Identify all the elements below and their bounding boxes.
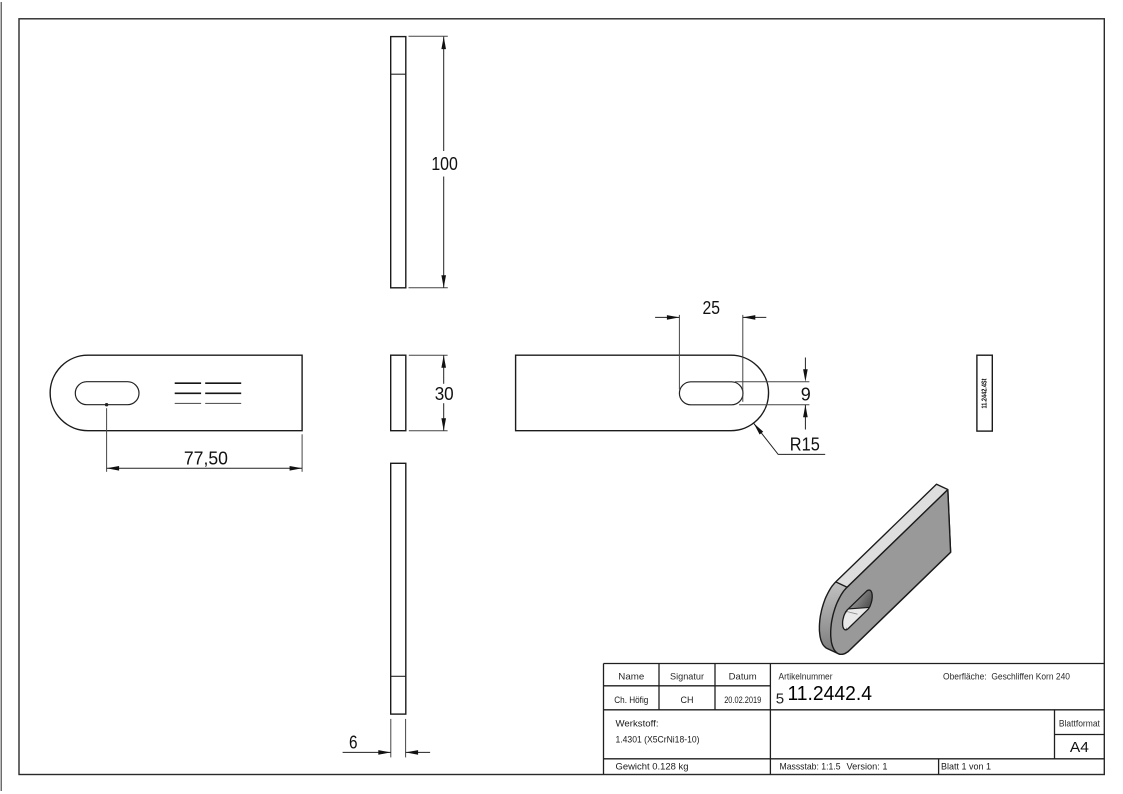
svg-text:A4: A4 (1070, 739, 1089, 756)
svg-text:6: 6 (349, 733, 358, 753)
svg-text:9: 9 (801, 384, 811, 404)
svg-text:Version: 1: Version: 1 (847, 762, 888, 773)
svg-text:Datum: Datum (729, 671, 757, 681)
svg-text:Blattformat: Blattformat (1059, 719, 1100, 729)
svg-text:5: 5 (776, 691, 784, 708)
svg-text:Artikelnummer: Artikelnummer (779, 671, 833, 681)
svg-text:Name: Name (618, 671, 644, 681)
svg-text:1.4301 (X5CrNi18-10): 1.4301 (X5CrNi18-10) (616, 735, 700, 746)
svg-text:100: 100 (431, 154, 458, 174)
svg-text:77,50: 77,50 (184, 448, 228, 468)
svg-text:25: 25 (703, 298, 721, 318)
svg-text:R15: R15 (790, 434, 820, 454)
svg-text:Gewicht 0.128 kg: Gewicht 0.128 kg (616, 762, 689, 773)
svg-text:Oberfläche: Geschliffen Korn: Oberfläche: Geschliffen Korn 240 (943, 671, 1070, 681)
svg-text:Blatt 1 von 1: Blatt 1 von 1 (941, 762, 991, 773)
svg-text:Massstab: 1:1.5: Massstab: 1:1.5 (780, 762, 841, 773)
svg-text:CH: CH (681, 695, 694, 706)
svg-text:Signatur: Signatur (670, 671, 704, 681)
svg-text:30: 30 (435, 384, 454, 404)
svg-text:11.2442.4: 11.2442.4 (788, 683, 873, 705)
svg-text:11.2442.4St: 11.2442.4St (981, 378, 988, 409)
svg-text:20.02.2019: 20.02.2019 (724, 695, 761, 706)
svg-text:Werkstoff:: Werkstoff: (616, 719, 659, 730)
svg-text:Ch. Höfig: Ch. Höfig (614, 695, 648, 706)
